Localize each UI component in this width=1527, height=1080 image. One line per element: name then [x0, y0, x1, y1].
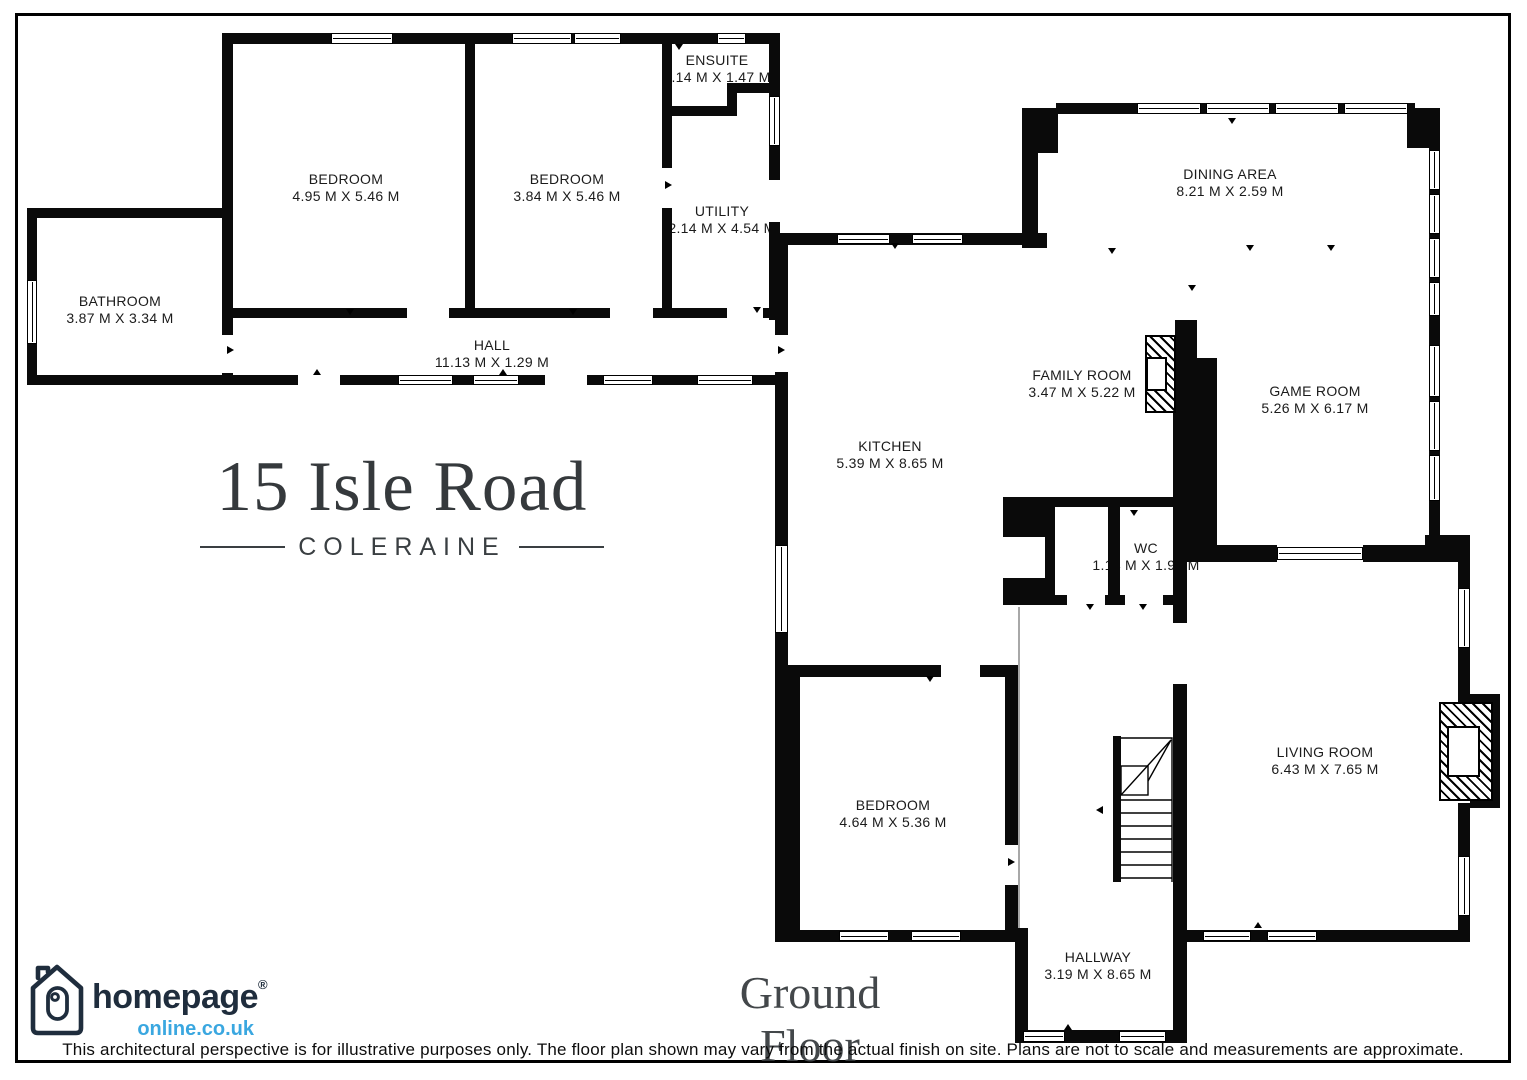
- wall: [1045, 595, 1067, 605]
- window-symbol: [769, 96, 780, 146]
- window-symbol: [1344, 103, 1408, 114]
- room-label-ensuite: ENSUITE 2.14 M X 1.47 M: [663, 52, 770, 85]
- room-label-bedroom-3: BEDROOM 4.64 M X 5.36 M: [839, 797, 946, 830]
- house-mouse-icon: [30, 962, 84, 1038]
- logo-wordmark: homepage®: [92, 978, 267, 1017]
- window-symbol: [1429, 345, 1440, 397]
- wall: [340, 375, 398, 385]
- window-symbol: [837, 234, 890, 244]
- window-symbol: [839, 931, 889, 941]
- room-label-bedroom-1: BEDROOM 4.95 M X 5.46 M: [292, 171, 399, 204]
- subtitle-rule-right: [519, 546, 604, 549]
- wall: [1173, 358, 1217, 560]
- room-label-dining-area: DINING AREA 8.21 M X 2.59 M: [1176, 166, 1283, 199]
- wall: [1175, 320, 1197, 360]
- window-symbol: [1429, 238, 1440, 278]
- photo-tick: [1108, 248, 1116, 254]
- wall: [1003, 578, 1048, 605]
- room-dims: 8.21 M X 2.59 M: [1176, 183, 1283, 200]
- room-name: BATHROOM: [66, 293, 173, 310]
- fireplace-opening: [1146, 357, 1167, 391]
- wall: [775, 243, 788, 335]
- window-symbol: [574, 33, 621, 44]
- room-name: DINING AREA: [1176, 166, 1283, 183]
- room-dims: 5.39 M X 8.65 M: [836, 455, 943, 472]
- window-symbol: [1429, 194, 1440, 234]
- window-symbol: [603, 375, 653, 385]
- window-symbol: [912, 234, 963, 244]
- door-tick: [1086, 604, 1094, 610]
- wall: [449, 308, 610, 318]
- room-name: FAMILY ROOM: [1028, 367, 1135, 384]
- wall: [980, 665, 1005, 677]
- window-symbol: [331, 33, 393, 44]
- wall: [788, 665, 800, 942]
- wall: [775, 930, 1018, 942]
- floor-plan: BEDROOM 4.95 M X 5.46 M BEDROOM 3.84 M X…: [0, 0, 1527, 1080]
- window-symbol: [1458, 588, 1470, 648]
- room-name: KITCHEN: [836, 438, 943, 455]
- door-tick: [227, 346, 234, 354]
- photo-tick: [1327, 245, 1335, 251]
- door-tick: [926, 676, 934, 682]
- room-dims: 3.47 M X 5.22 M: [1028, 384, 1135, 401]
- door-tick: [1064, 1024, 1072, 1030]
- room-dims: 3.84 M X 5.46 M: [513, 188, 620, 205]
- window-symbol: [775, 545, 788, 633]
- door-tick: [313, 369, 321, 375]
- window-symbol: [398, 375, 453, 385]
- wall: [1173, 684, 1187, 1042]
- wall: [1022, 153, 1038, 233]
- property-title-block: 15 Isle Road COLERAINE: [200, 450, 604, 562]
- wall: [1045, 507, 1055, 605]
- door-tick: [891, 243, 899, 249]
- room-dims: 4.64 M X 5.36 M: [839, 814, 946, 831]
- wall: [775, 233, 1047, 245]
- wall: [453, 375, 473, 385]
- door-tick: [1254, 922, 1262, 928]
- room-label-kitchen: KITCHEN 5.39 M X 8.65 M: [836, 438, 943, 471]
- window-symbol: [717, 33, 746, 44]
- logo-domain: online.co.uk: [92, 1018, 254, 1041]
- property-subtitle: COLERAINE: [298, 533, 505, 562]
- room-name: HALLWAY: [1044, 949, 1151, 966]
- wall: [1363, 545, 1470, 562]
- wall: [662, 106, 737, 116]
- homepage-logo: homepage® online.co.uk: [30, 962, 84, 1043]
- wall: [587, 375, 603, 385]
- room-label-game-room: GAME ROOM 5.26 M X 6.17 M: [1261, 383, 1368, 416]
- room-label-living-room: LIVING ROOM 6.43 M X 7.65 M: [1271, 744, 1378, 777]
- room-dims: 3.19 M X 8.65 M: [1044, 966, 1151, 983]
- window-symbol: [697, 375, 753, 385]
- room-label-utility: UTILITY 2.14 M X 4.54 M: [668, 203, 775, 236]
- window-symbol: [1275, 103, 1339, 114]
- stair-direction-arrow: [1096, 806, 1103, 814]
- room-name: UTILITY: [668, 203, 775, 220]
- wall: [800, 665, 941, 677]
- room-label-bedroom-2: BEDROOM 3.84 M X 5.46 M: [513, 171, 620, 204]
- window-symbol: [473, 375, 519, 385]
- window-symbol: [1206, 103, 1270, 114]
- room-dims: 11.13 M X 1.29 M: [435, 354, 549, 371]
- wall: [653, 375, 697, 385]
- wall: [1407, 108, 1440, 148]
- door-tick: [1228, 118, 1236, 124]
- room-dims: 2.14 M X 4.54 M: [668, 220, 775, 237]
- wall: [1005, 665, 1018, 845]
- wall: [27, 208, 233, 218]
- window-symbol: [1137, 103, 1201, 114]
- wall: [1022, 108, 1058, 153]
- logo-brand: homepage: [92, 978, 258, 1016]
- room-name: BEDROOM: [839, 797, 946, 814]
- window-symbol: [1429, 150, 1440, 190]
- room-label-hallway: HALLWAY 3.19 M X 8.65 M: [1044, 949, 1151, 982]
- room-name: BEDROOM: [292, 171, 399, 188]
- fireplace-opening: [1447, 726, 1480, 777]
- window-symbol: [1429, 455, 1440, 501]
- wall: [1015, 928, 1028, 1042]
- room-dims: 3.87 M X 3.34 M: [66, 310, 173, 327]
- wall: [775, 372, 788, 942]
- door-tick: [665, 181, 672, 189]
- window-symbol: [911, 931, 961, 941]
- window-symbol: [1203, 931, 1251, 941]
- property-subtitle-row: COLERAINE: [200, 533, 604, 562]
- door-tick: [778, 346, 785, 354]
- door-tick: [499, 369, 507, 375]
- window-symbol: [512, 33, 572, 44]
- room-name: GAME ROOM: [1261, 383, 1368, 400]
- opening-line: [1018, 607, 1020, 930]
- room-name: LIVING ROOM: [1271, 744, 1378, 761]
- wall: [233, 308, 407, 318]
- door-tick: [675, 44, 683, 50]
- room-name: ENSUITE: [663, 52, 770, 69]
- wall: [1187, 545, 1277, 562]
- window-symbol: [1429, 282, 1440, 316]
- door-tick: [753, 307, 761, 313]
- subtitle-rule-left: [200, 546, 285, 549]
- room-label-bathroom: BATHROOM 3.87 M X 3.34 M: [66, 293, 173, 326]
- wall: [465, 44, 475, 308]
- window-symbol: [1267, 931, 1317, 941]
- wall: [222, 44, 233, 208]
- wall: [222, 218, 233, 335]
- disclaimer-text: This architectural perspective is for il…: [15, 1040, 1511, 1060]
- door-tick: [1130, 510, 1138, 516]
- property-title: 15 Isle Road: [200, 450, 604, 525]
- window-symbol: [1277, 547, 1363, 560]
- room-label-hall: HALL 11.13 M X 1.29 M: [435, 337, 549, 370]
- room-dims: 6.43 M X 7.65 M: [1271, 761, 1378, 778]
- door-tick: [569, 309, 577, 315]
- door-tick: [1139, 604, 1147, 610]
- photo-tick: [1188, 285, 1196, 291]
- registered-mark: ®: [258, 977, 267, 992]
- wall: [1003, 497, 1048, 537]
- wall: [519, 375, 545, 385]
- window-symbol: [1458, 856, 1470, 916]
- wall: [653, 308, 727, 318]
- wall: [1173, 560, 1187, 623]
- wall: [1105, 595, 1125, 605]
- room-label-family-room: FAMILY ROOM 3.47 M X 5.22 M: [1028, 367, 1135, 400]
- wall: [1022, 233, 1047, 248]
- wall: [662, 208, 672, 308]
- staircase: [1121, 737, 1173, 883]
- photo-tick: [1246, 245, 1254, 251]
- window-symbol: [27, 280, 37, 344]
- room-dims: 5.26 M X 6.17 M: [1261, 400, 1368, 417]
- room-name: BEDROOM: [513, 171, 620, 188]
- door-tick: [346, 309, 354, 315]
- room-name: HALL: [435, 337, 549, 354]
- wall: [1113, 736, 1121, 882]
- door-tick: [1008, 858, 1015, 866]
- room-dims: 4.95 M X 5.46 M: [292, 188, 399, 205]
- wall: [222, 33, 780, 44]
- window-symbol: [1429, 401, 1440, 451]
- wall: [1108, 507, 1120, 605]
- wall: [27, 375, 298, 385]
